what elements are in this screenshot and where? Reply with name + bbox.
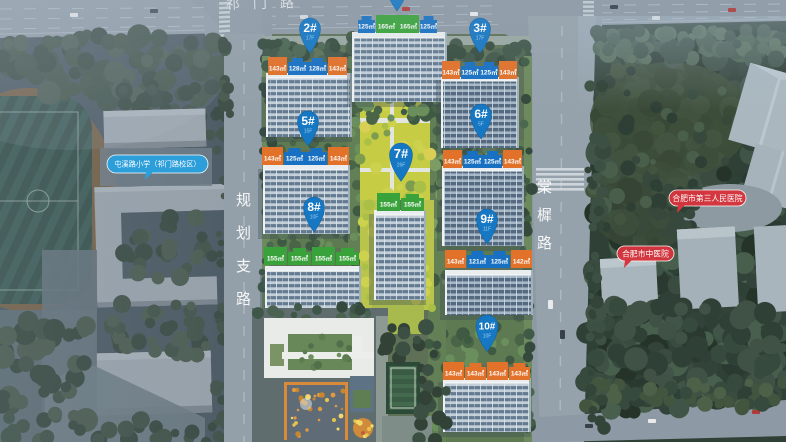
svg-text:15F: 15F xyxy=(304,129,313,135)
svg-text:8#: 8# xyxy=(307,200,321,214)
svg-text:143㎡: 143㎡ xyxy=(445,369,463,378)
svg-text:155㎡: 155㎡ xyxy=(404,200,422,209)
svg-text:125㎡: 125㎡ xyxy=(484,157,502,166)
svg-text:121㎡: 121㎡ xyxy=(469,257,487,266)
svg-text:9#: 9# xyxy=(480,212,494,226)
svg-text:143㎡: 143㎡ xyxy=(330,154,348,163)
svg-text:155㎡: 155㎡ xyxy=(339,254,357,263)
svg-text:26F: 26F xyxy=(397,163,406,169)
svg-text:支: 支 xyxy=(236,258,251,275)
svg-text:125㎡: 125㎡ xyxy=(491,257,509,266)
svg-text:11F: 11F xyxy=(483,227,491,233)
svg-text:143㎡: 143㎡ xyxy=(504,157,522,166)
svg-text:10F: 10F xyxy=(483,334,492,340)
svg-text:划: 划 xyxy=(236,225,251,242)
svg-text:路: 路 xyxy=(236,291,251,308)
svg-text:樨: 樨 xyxy=(537,207,552,224)
svg-text:合肥市第三人民医院: 合肥市第三人民医院 xyxy=(672,193,742,203)
svg-text:155㎡: 155㎡ xyxy=(267,254,285,263)
svg-text:5#: 5# xyxy=(301,114,315,128)
svg-text:143㎡: 143㎡ xyxy=(444,157,462,166)
svg-text:棠: 棠 xyxy=(537,179,552,196)
svg-text:屯溪路小学（祁门路校区）: 屯溪路小学（祁门路校区） xyxy=(114,160,200,169)
svg-text:路: 路 xyxy=(537,235,552,252)
svg-text:125㎡: 125㎡ xyxy=(464,157,482,166)
svg-text:155㎡: 155㎡ xyxy=(291,254,309,263)
svg-text:合肥市中医院: 合肥市中医院 xyxy=(622,248,669,258)
svg-text:125㎡: 125㎡ xyxy=(286,154,304,163)
svg-text:5F: 5F xyxy=(478,122,484,128)
svg-text:143㎡: 143㎡ xyxy=(511,369,529,378)
svg-text:143㎡: 143㎡ xyxy=(447,257,465,266)
svg-text:10#: 10# xyxy=(479,322,496,333)
svg-text:125㎡: 125㎡ xyxy=(308,154,326,163)
svg-text:规: 规 xyxy=(236,192,251,209)
svg-text:155㎡: 155㎡ xyxy=(380,200,398,209)
svg-text:7#: 7# xyxy=(394,146,409,161)
svg-text:143㎡: 143㎡ xyxy=(264,154,282,163)
svg-text:142㎡: 142㎡ xyxy=(513,257,531,266)
svg-text:155㎡: 155㎡ xyxy=(315,254,333,263)
svg-text:143㎡: 143㎡ xyxy=(467,369,485,378)
svg-text:143㎡: 143㎡ xyxy=(489,369,507,378)
svg-text:10F: 10F xyxy=(310,215,319,221)
